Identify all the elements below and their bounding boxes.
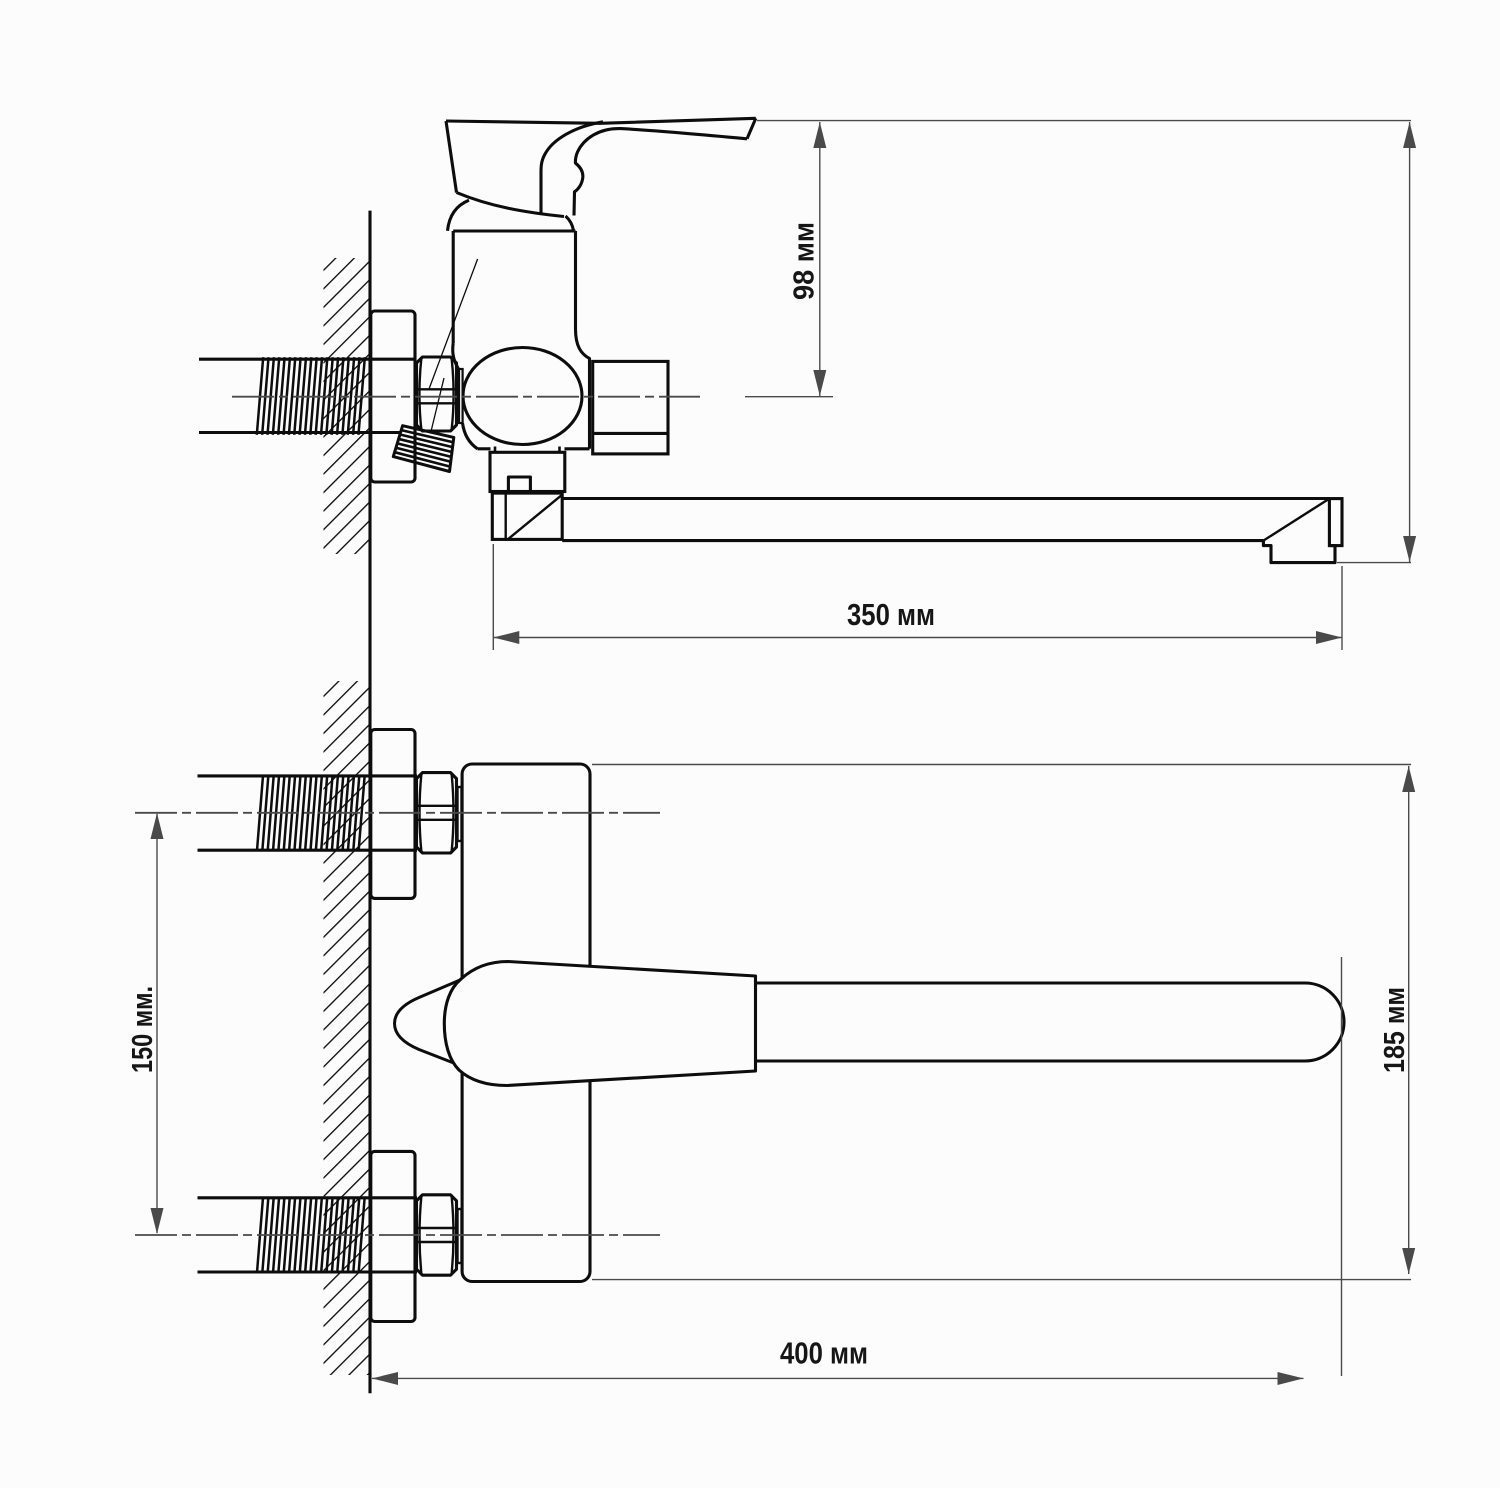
svg-text:400 мм: 400 мм (780, 1336, 868, 1371)
svg-text:350 мм: 350 мм (847, 597, 935, 632)
svg-text:98 мм: 98 мм (789, 222, 821, 300)
svg-text:150 мм.: 150 мм. (127, 986, 159, 1073)
svg-text:185 мм: 185 мм (1379, 987, 1411, 1073)
